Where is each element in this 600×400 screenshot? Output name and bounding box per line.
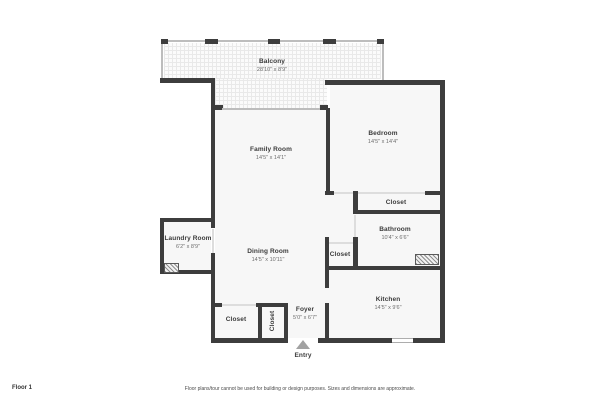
balcony-rail-left: [161, 40, 163, 80]
wall: [318, 338, 392, 343]
wall: [440, 80, 445, 343]
floor-number-label: Floor 1: [12, 385, 32, 391]
wall: [160, 78, 215, 83]
entry-closet-right-label: Closet: [269, 311, 277, 331]
bedroom-closet-label: Closet: [386, 199, 406, 207]
balcony-slider: [222, 108, 320, 110]
wall: [325, 266, 440, 270]
entry-closet-left-label: Closet: [226, 316, 246, 324]
wall: [211, 338, 288, 343]
bedroom-closet-door: [358, 192, 425, 194]
balcony-post: [268, 39, 280, 44]
bedroom-label: Bedroom 14'5" x 14'4": [368, 130, 398, 146]
balcony-post: [323, 39, 336, 44]
kitchen-label: Kitchen 14'5" x 9'6": [374, 296, 401, 312]
laundry-room-label: Laundry Room 6'2" x 8'9": [164, 235, 211, 251]
wall: [326, 108, 330, 191]
entry-closet-door: [222, 304, 256, 306]
bathroom-label: Bathroom 10'4" x 6'6": [379, 226, 411, 242]
wall: [211, 253, 215, 343]
balcony-deck-lower: [215, 79, 327, 109]
wall: [284, 306, 288, 338]
disclaimer-text: Floor plans/tour cannot be used for buil…: [185, 386, 415, 392]
wall: [325, 270, 329, 288]
wall: [160, 218, 213, 222]
wall: [425, 191, 440, 195]
laundry-door: [212, 229, 214, 253]
bedroom-door: [334, 192, 353, 194]
wall: [325, 191, 334, 195]
dining-room-label: Dining Room 14'5" x 10'11": [247, 248, 289, 264]
wall: [353, 210, 440, 214]
wall: [353, 237, 358, 267]
family-room-label: Family Room 14'5" x 14'1": [250, 146, 292, 162]
kitchen-window: [392, 338, 413, 343]
wall: [320, 105, 328, 110]
wall: [258, 306, 262, 338]
balcony-label: Balcony 28'10" x 8'9": [257, 58, 287, 74]
wall: [413, 338, 440, 343]
entry-arrow-icon: [296, 340, 310, 349]
hall-closet-label: Closet: [330, 251, 350, 259]
entry-label: Entry: [294, 352, 311, 360]
bathtub-fixture: [415, 254, 439, 265]
wall: [215, 303, 222, 307]
wall: [325, 80, 445, 85]
balcony-post: [161, 39, 168, 44]
hall-closet-door: [329, 242, 353, 244]
washer-fixture: [164, 263, 179, 273]
foyer-label: Foyer 5'0" x 6'7": [293, 306, 317, 322]
wall: [211, 78, 215, 228]
wall: [325, 303, 329, 343]
balcony-post: [205, 39, 218, 44]
floor-plan: Balcony 28'10" x 8'9" Family Room 14'5" …: [0, 0, 600, 400]
bathroom-door: [354, 215, 356, 237]
balcony-post: [377, 39, 384, 44]
balcony-rail-right: [382, 40, 384, 80]
